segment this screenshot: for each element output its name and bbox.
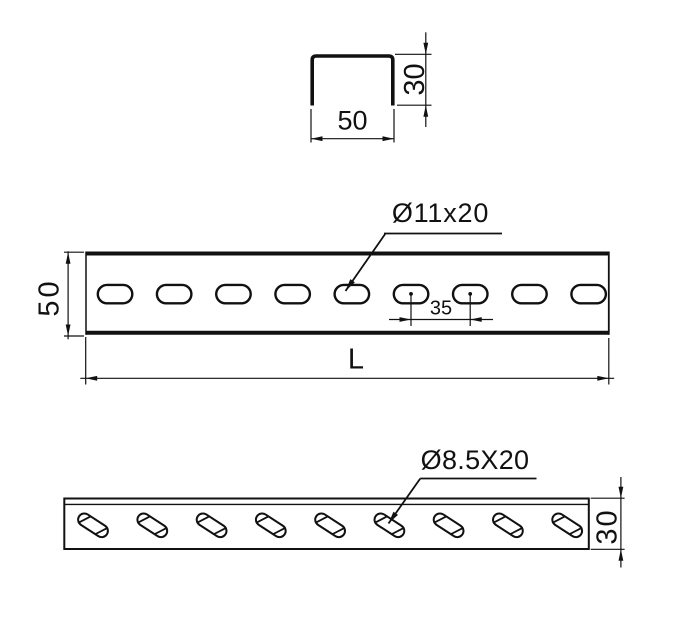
svg-text:Ø8.5X20: Ø8.5X20 (421, 445, 530, 475)
svg-text:35: 35 (430, 298, 452, 320)
svg-text:Ø11x20: Ø11x20 (392, 198, 489, 228)
svg-text:30: 30 (592, 508, 624, 544)
svg-text:30: 30 (399, 63, 431, 95)
svg-text:L: L (348, 344, 364, 376)
svg-text:50: 50 (34, 278, 66, 316)
svg-text:50: 50 (337, 106, 367, 136)
